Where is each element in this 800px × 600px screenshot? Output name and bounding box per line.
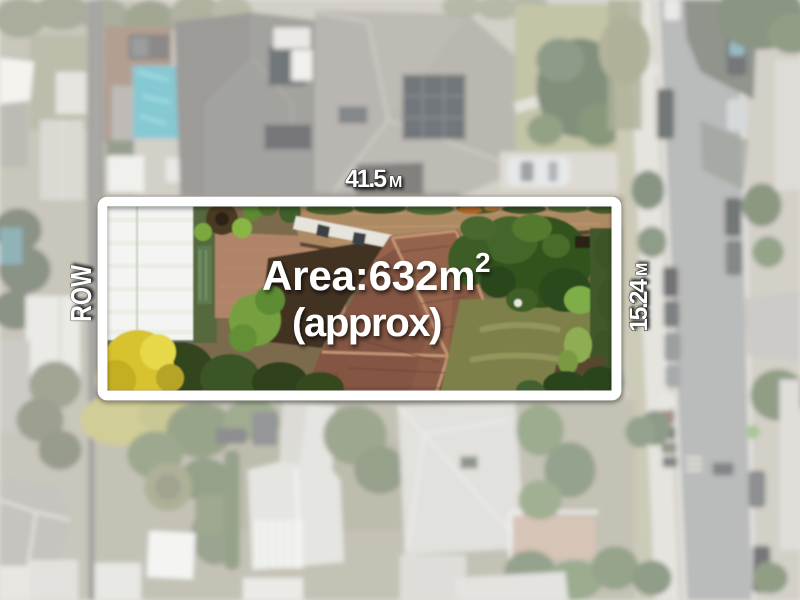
svg-text:ROW: ROW (66, 264, 98, 322)
svg-text:Area:632m: Area:632m (262, 252, 475, 299)
svg-text:15.24: 15.24 (625, 279, 653, 332)
svg-text:M: M (634, 263, 651, 276)
svg-text:2: 2 (475, 247, 491, 278)
svg-text:M: M (389, 174, 402, 191)
svg-text:41.5: 41.5 (345, 165, 387, 193)
svg-text:(approx): (approx) (292, 301, 442, 345)
